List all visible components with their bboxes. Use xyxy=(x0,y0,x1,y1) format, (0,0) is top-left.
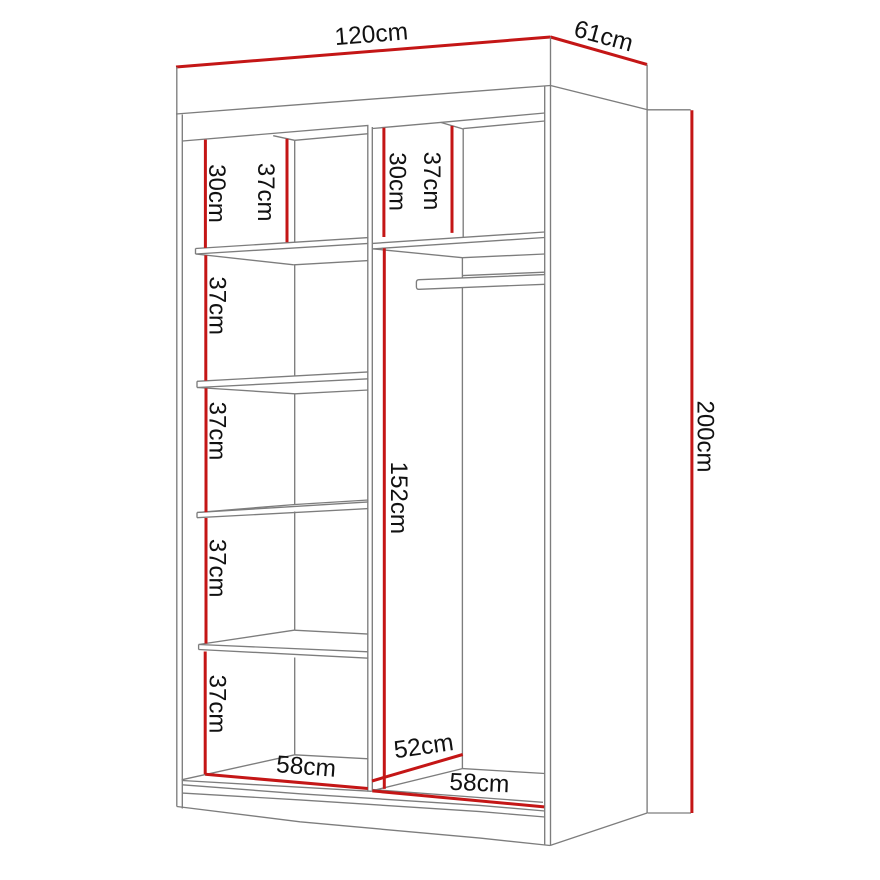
svg-text:37cm: 37cm xyxy=(204,276,231,335)
svg-text:30cm: 30cm xyxy=(203,164,230,223)
svg-text:37cm: 37cm xyxy=(204,402,231,461)
svg-text:58cm: 58cm xyxy=(275,751,337,783)
svg-text:37cm: 37cm xyxy=(204,539,231,598)
svg-text:30cm: 30cm xyxy=(384,152,411,211)
svg-text:152cm: 152cm xyxy=(385,461,412,534)
svg-text:37cm: 37cm xyxy=(252,163,279,222)
svg-text:58cm: 58cm xyxy=(449,769,510,799)
svg-text:200cm: 200cm xyxy=(692,400,719,472)
svg-text:37cm: 37cm xyxy=(204,675,231,734)
svg-text:37cm: 37cm xyxy=(418,152,445,211)
